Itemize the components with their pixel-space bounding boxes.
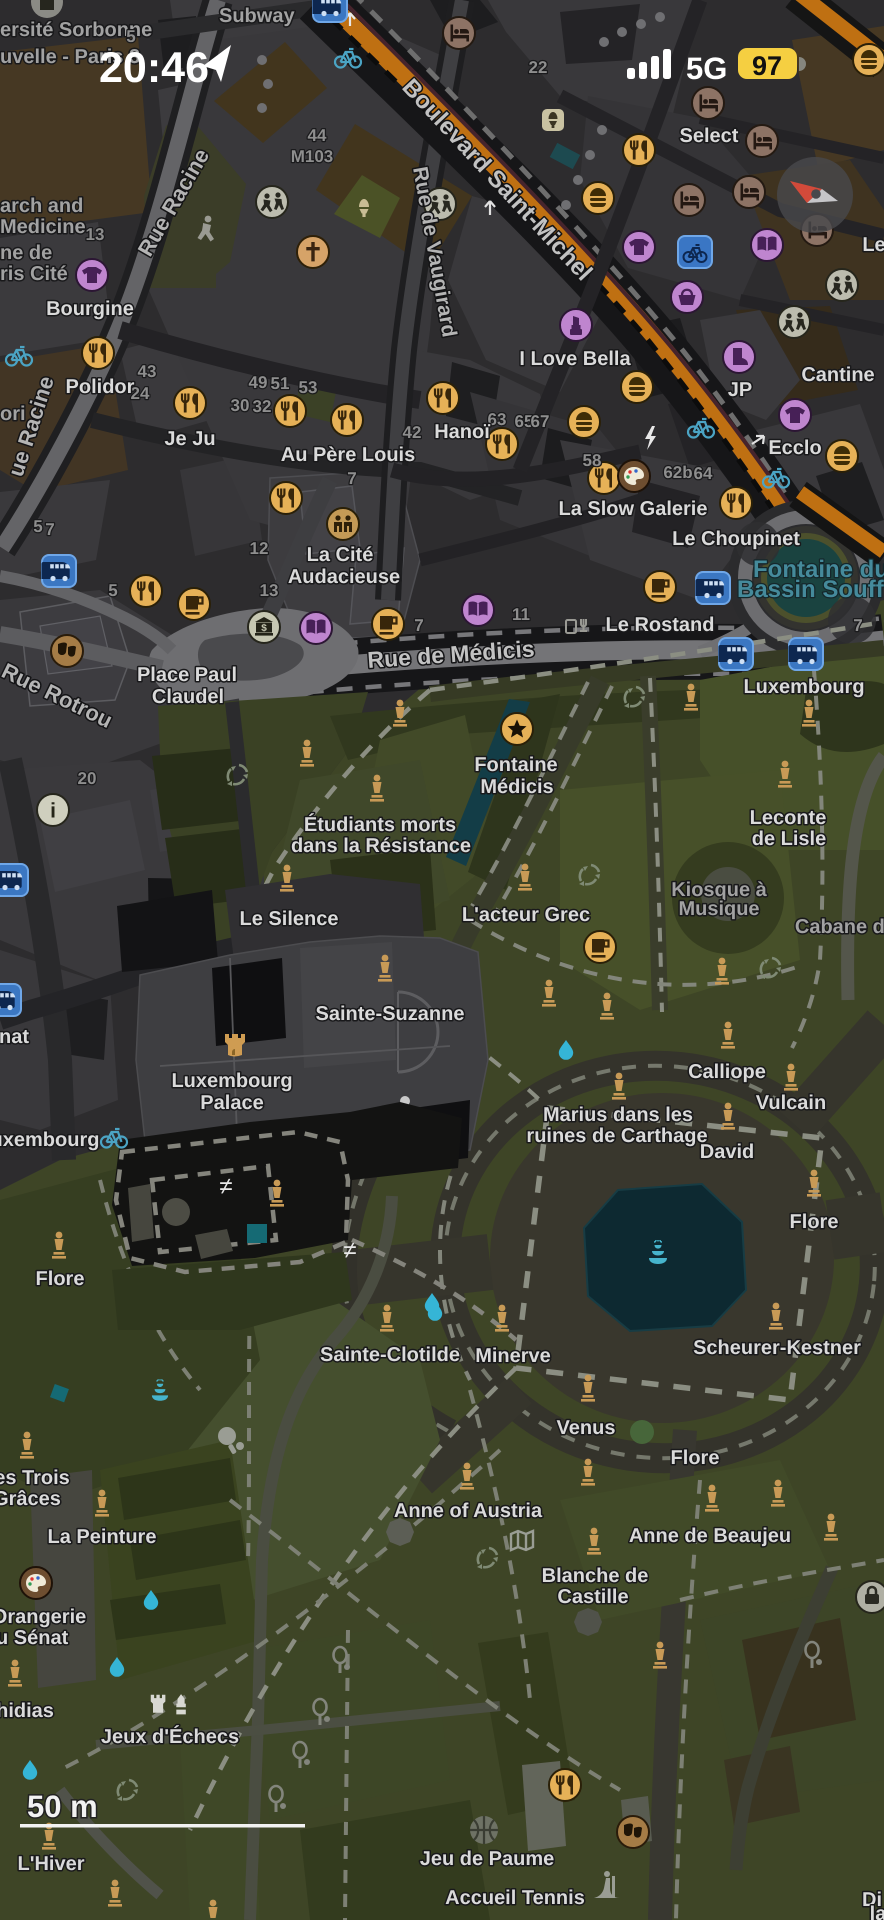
svg-text:Grâces: Grâces	[0, 1488, 61, 1510]
svg-text:Flore: Flore	[671, 1447, 720, 1469]
svg-text:Ecclo: Ecclo	[768, 437, 821, 459]
svg-text:ne de: ne de	[0, 242, 52, 264]
svg-text:La Peinture: La Peinture	[48, 1526, 157, 1548]
svg-text:Cantine: Cantine	[801, 364, 874, 386]
svg-text:5G: 5G	[686, 51, 727, 86]
svg-text:30: 30	[231, 396, 250, 415]
svg-text:44: 44	[308, 126, 327, 145]
svg-text:de Lisle: de Lisle	[752, 828, 826, 850]
svg-text:Le: Le	[862, 234, 884, 256]
svg-text:42: 42	[403, 423, 422, 442]
svg-text:64: 64	[694, 464, 713, 483]
svg-text:Hanoï: Hanoï	[434, 421, 490, 443]
svg-text:Minerve: Minerve	[475, 1345, 551, 1367]
svg-text:12: 12	[250, 539, 269, 558]
svg-text:20: 20	[78, 769, 97, 788]
svg-text:50 m: 50 m	[27, 1789, 98, 1824]
svg-text:7: 7	[347, 469, 356, 488]
svg-text:Medicine: Medicine	[0, 216, 86, 238]
svg-text:Bassin Soufflot: Bassin Soufflot	[737, 576, 884, 603]
svg-text:Castille: Castille	[557, 1586, 628, 1608]
svg-text:Blanche de: Blanche de	[542, 1565, 649, 1587]
svg-text:43: 43	[138, 362, 157, 381]
svg-text:Bourgine: Bourgine	[46, 298, 134, 320]
svg-text:dans la Résistance: dans la Résistance	[291, 835, 471, 857]
svg-text:49: 49	[249, 373, 268, 392]
svg-text:5: 5	[108, 581, 117, 600]
svg-text:11: 11	[512, 605, 530, 624]
svg-text:nat: nat	[0, 1026, 29, 1048]
svg-text:Anne de Beaujeu: Anne de Beaujeu	[629, 1525, 791, 1547]
svg-text:la: la	[870, 1903, 884, 1920]
svg-text:Sainte-Suzanne: Sainte-Suzanne	[316, 1003, 465, 1025]
svg-text:67: 67	[531, 412, 550, 431]
svg-text:L'acteur Grec: L'acteur Grec	[462, 904, 590, 926]
svg-text:Anne of Austria: Anne of Austria	[394, 1500, 543, 1522]
svg-text:ruines de Carthage: ruines de Carthage	[526, 1125, 707, 1147]
svg-text:63: 63	[488, 410, 507, 429]
svg-text:Place Paul: Place Paul	[137, 664, 237, 686]
svg-text:Calliope: Calliope	[688, 1061, 766, 1083]
svg-text:David: David	[700, 1141, 754, 1163]
svg-text:7: 7	[45, 520, 54, 539]
svg-text:Vulcain: Vulcain	[756, 1092, 826, 1114]
svg-text:Je Ju: Je Ju	[164, 428, 215, 450]
svg-text:7: 7	[414, 616, 423, 635]
svg-text:arch and: arch and	[0, 195, 83, 217]
svg-text:62b: 62b	[663, 463, 692, 482]
svg-text:13: 13	[260, 581, 279, 600]
svg-text:du Sénat: du Sénat	[0, 1627, 69, 1649]
svg-text:≠: ≠	[343, 1237, 356, 1264]
svg-text:La Cité: La Cité	[307, 544, 374, 566]
svg-text:Claudel: Claudel	[152, 686, 224, 708]
svg-text:97: 97	[752, 51, 782, 81]
svg-text:13: 13	[86, 225, 105, 244]
svg-text:5: 5	[33, 517, 42, 536]
svg-text:53: 53	[299, 378, 318, 397]
svg-text:Le Choupinet: Le Choupinet	[672, 528, 800, 550]
svg-text:Jeux d'Échecs: Jeux d'Échecs	[101, 1725, 239, 1748]
svg-text:Fontaine: Fontaine	[474, 754, 557, 776]
svg-text:M103: M103	[291, 147, 334, 166]
svg-text:Jeu de Paume: Jeu de Paume	[420, 1848, 555, 1870]
svg-text:Étudiants morts: Étudiants morts	[304, 813, 456, 836]
svg-text:Médicis: Médicis	[480, 776, 553, 798]
svg-text:Palace: Palace	[200, 1092, 263, 1114]
svg-text:7: 7	[853, 616, 862, 635]
svg-text:Subway: Subway	[219, 5, 295, 27]
svg-text:Luxembourg: Luxembourg	[171, 1070, 292, 1092]
svg-text:JP: JP	[728, 379, 752, 401]
svg-text:Sainte-Clotilde: Sainte-Clotilde	[320, 1344, 460, 1366]
svg-text:I Love Bella: I Love Bella	[519, 348, 631, 370]
svg-text:Accueil Tennis: Accueil Tennis	[445, 1887, 585, 1909]
svg-text:Flore: Flore	[790, 1211, 839, 1233]
svg-text:Select: Select	[680, 125, 739, 147]
svg-text:Marius dans les: Marius dans les	[543, 1104, 693, 1126]
svg-text:22: 22	[529, 58, 548, 77]
svg-text:Venus: Venus	[557, 1417, 616, 1439]
svg-text:Le Silence: Le Silence	[240, 908, 339, 930]
svg-text:hidias: hidias	[0, 1700, 54, 1722]
svg-text:Flore: Flore	[36, 1268, 85, 1290]
svg-text:Scheurer-Kestner: Scheurer-Kestner	[693, 1337, 861, 1359]
svg-text:Audacieuse: Audacieuse	[288, 566, 400, 588]
svg-text:Au Père Louis: Au Père Louis	[281, 444, 415, 466]
svg-text:20:46: 20:46	[99, 44, 209, 92]
svg-text:es Trois: es Trois	[0, 1467, 70, 1489]
svg-text:58: 58	[583, 451, 602, 470]
svg-text:Leconte: Leconte	[750, 807, 827, 829]
svg-text:51: 51	[271, 374, 290, 393]
svg-text:uxembourg: uxembourg	[0, 1129, 99, 1151]
svg-text:ori: ori	[0, 403, 26, 425]
svg-text:L'Hiver: L'Hiver	[17, 1853, 84, 1875]
svg-text:ris Cité: ris Cité	[0, 263, 68, 285]
svg-text:32: 32	[253, 397, 272, 416]
svg-text:Orangerie: Orangerie	[0, 1606, 86, 1628]
svg-text:Cabane du: Cabane du	[795, 916, 884, 938]
svg-text:Luxembourg: Luxembourg	[743, 676, 864, 698]
svg-text:Polidor: Polidor	[66, 376, 135, 398]
svg-text:Le Rostand: Le Rostand	[606, 614, 715, 636]
svg-text:Musique: Musique	[678, 898, 759, 920]
svg-text:≠: ≠	[219, 1173, 232, 1200]
svg-text:La Slow Galerie: La Slow Galerie	[559, 498, 708, 520]
